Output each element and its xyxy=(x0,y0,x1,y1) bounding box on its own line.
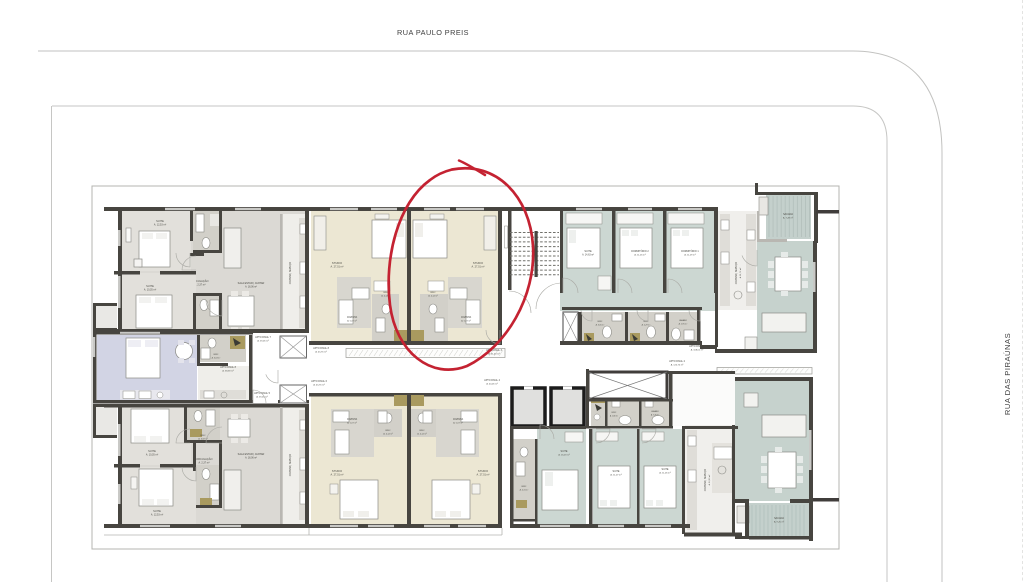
svg-text:A. 9,25 m²: A. 9,25 m² xyxy=(774,520,784,523)
svg-text:BWC: BWC xyxy=(200,435,206,437)
svg-text:A. 5,07 m²: A. 5,07 m² xyxy=(347,421,357,424)
svg-text:LAVABO: LAVABO xyxy=(651,410,659,413)
svg-text:A. 27,01 m²: A. 27,01 m² xyxy=(477,473,490,476)
svg-text:A. 7,26 m²: A. 7,26 m² xyxy=(651,413,660,416)
svg-text:COZINHA | SERVIÇO: COZINHA | SERVIÇO xyxy=(289,454,292,477)
svg-text:A. 3,05 m²: A. 3,05 m² xyxy=(596,323,605,326)
svg-text:SUITE: SUITE xyxy=(156,219,164,223)
svg-text:APTO FINAL 1: APTO FINAL 1 xyxy=(689,345,705,348)
svg-text:A. 59,06 m²: A. 59,06 m² xyxy=(256,395,268,398)
svg-text:APTO FINAL 2: APTO FINAL 2 xyxy=(669,360,685,363)
svg-text:APTO FINAL 8: APTO FINAL 8 xyxy=(313,347,329,350)
svg-text:SACADA: SACADA xyxy=(783,213,793,216)
svg-text:SUITE: SUITE xyxy=(584,250,592,253)
svg-text:A. 27,01 m²: A. 27,01 m² xyxy=(472,265,485,268)
svg-text:A. 4,31 m²: A. 4,31 m² xyxy=(520,488,529,491)
svg-text:A. 2,37 m²: A. 2,37 m² xyxy=(198,461,209,464)
svg-text:COZINHA | SERVIÇO: COZINHA | SERVIÇO xyxy=(735,262,738,285)
svg-text:STUDIO: STUDIO xyxy=(478,469,488,473)
svg-text:A. 12,99 m²: A. 12,99 m² xyxy=(708,474,711,485)
svg-text:SUITE: SUITE xyxy=(148,449,156,453)
svg-text:APTO FINAL 7: APTO FINAL 7 xyxy=(255,336,271,339)
svg-text:BWC: BWC xyxy=(214,354,219,356)
svg-text:BWC: BWC xyxy=(430,292,436,294)
svg-text:BWC: BWC xyxy=(612,412,617,414)
svg-text:A. 14,63 m²: A. 14,63 m² xyxy=(582,253,594,256)
svg-text:COZINHA | SERVIÇO: COZINHA | SERVIÇO xyxy=(704,469,707,492)
svg-text:A. 27,01 m²: A. 27,01 m² xyxy=(331,265,344,268)
svg-text:BWC: BWC xyxy=(598,321,603,323)
svg-text:A. 3,03 m²: A. 3,03 m² xyxy=(212,356,221,359)
svg-text:A. 11,26 m²: A. 11,26 m² xyxy=(634,253,645,256)
svg-text:RUA DAS PIRAÚNAS: RUA DAS PIRAÚNAS xyxy=(1003,333,1012,415)
svg-text:COZINHA: COZINHA xyxy=(453,418,464,421)
svg-text:BWC: BWC xyxy=(385,430,391,432)
svg-text:A. 11,09 m²: A. 11,09 m² xyxy=(684,253,695,256)
svg-text:A. 45,76 m²: A. 45,76 m² xyxy=(313,383,325,386)
svg-text:SUITE: SUITE xyxy=(153,509,161,513)
svg-text:A. 108,01 m²: A. 108,01 m² xyxy=(691,348,704,351)
svg-text:A. 10,35 m²: A. 10,35 m² xyxy=(146,453,159,456)
svg-text:APTO FINAL 6: APTO FINAL 6 xyxy=(311,380,327,383)
svg-text:A. 4,14 m²: A. 4,14 m² xyxy=(383,432,393,435)
svg-text:A. 1,95 m²: A. 1,95 m² xyxy=(679,322,688,325)
svg-text:A. 1,80 m²: A. 1,80 m² xyxy=(610,414,619,417)
svg-text:APTO FINAL 8: APTO FINAL 8 xyxy=(220,366,236,369)
svg-text:BWC: BWC xyxy=(419,430,425,432)
svg-text:A. 16,03 m²: A. 16,03 m² xyxy=(558,453,570,456)
svg-text:A. 11,06 m²: A. 11,06 m² xyxy=(659,471,670,474)
svg-text:A. 2,37 m²: A. 2,37 m² xyxy=(194,283,205,286)
svg-text:A. 11,72 m²: A. 11,72 m² xyxy=(739,267,742,278)
svg-text:A. 27,01 m²: A. 27,01 m² xyxy=(331,473,344,476)
svg-text:A. 2,29 m²: A. 2,29 m² xyxy=(642,323,651,326)
svg-text:A. 4,14 m²: A. 4,14 m² xyxy=(428,294,438,297)
svg-text:A. 61,43 m²: A. 61,43 m² xyxy=(488,352,500,355)
svg-text:STUDIO: STUDIO xyxy=(332,261,342,265)
svg-text:A. 45,76 m²: A. 45,76 m² xyxy=(315,350,327,353)
svg-text:A. 12,53 m²: A. 12,53 m² xyxy=(154,223,167,226)
svg-text:COZINHA | SERVIÇO: COZINHA | SERVIÇO xyxy=(289,262,292,285)
svg-text:A. 5,07 m²: A. 5,07 m² xyxy=(461,319,471,322)
svg-text:A. 10,35 m²: A. 10,35 m² xyxy=(144,288,157,291)
svg-text:APTO FINAL 5: APTO FINAL 5 xyxy=(254,392,270,395)
svg-text:A. 40,06 m²: A. 40,06 m² xyxy=(486,382,498,385)
svg-text:A. 125,75 m²: A. 125,75 m² xyxy=(671,363,684,366)
svg-text:A. 38,38 m²: A. 38,38 m² xyxy=(222,369,234,372)
svg-text:A. 12,53 m²: A. 12,53 m² xyxy=(151,513,164,516)
svg-text:A. 4,14 m²: A. 4,14 m² xyxy=(417,432,427,435)
svg-text:SALA ESTAR | JANTAR: SALA ESTAR | JANTAR xyxy=(238,453,265,456)
svg-text:A. 5,07 m²: A. 5,07 m² xyxy=(347,319,357,322)
svg-text:COZINHA: COZINHA xyxy=(347,316,358,319)
svg-text:SALA ESTAR | JANTAR: SALA ESTAR | JANTAR xyxy=(238,282,265,285)
svg-text:DORMITÓRIO 2: DORMITÓRIO 2 xyxy=(631,250,649,253)
svg-text:RUA PAULO PREIS: RUA PAULO PREIS xyxy=(397,28,469,37)
svg-text:STUDIO: STUDIO xyxy=(473,261,483,265)
svg-text:APTO FINAL 4: APTO FINAL 4 xyxy=(484,379,500,382)
svg-text:COZINHA: COZINHA xyxy=(347,418,358,421)
svg-text:LAVABO: LAVABO xyxy=(679,319,687,322)
svg-text:A. 59,06 m²: A. 59,06 m² xyxy=(257,339,269,342)
svg-text:BWC: BWC xyxy=(522,486,527,488)
svg-text:A. 18,06 m²: A. 18,06 m² xyxy=(245,285,257,288)
svg-text:A. 7,28 m²: A. 7,28 m² xyxy=(783,216,793,219)
svg-text:DORMITÓRIO 1: DORMITÓRIO 1 xyxy=(681,250,699,253)
svg-text:SUITE: SUITE xyxy=(146,284,154,288)
svg-text:A. 11,07 m²: A. 11,07 m² xyxy=(610,473,621,476)
svg-text:SUITE: SUITE xyxy=(560,450,567,453)
svg-text:COZINHA: COZINHA xyxy=(461,316,472,319)
svg-text:A. 18,06 m²: A. 18,06 m² xyxy=(245,456,257,459)
svg-text:A. 5,07 m²: A. 5,07 m² xyxy=(453,421,463,424)
svg-text:SUITE: SUITE xyxy=(661,468,668,471)
svg-text:STUDIO: STUDIO xyxy=(332,469,342,473)
svg-text:SACADA: SACADA xyxy=(774,517,784,520)
svg-text:SUITE: SUITE xyxy=(612,470,619,473)
